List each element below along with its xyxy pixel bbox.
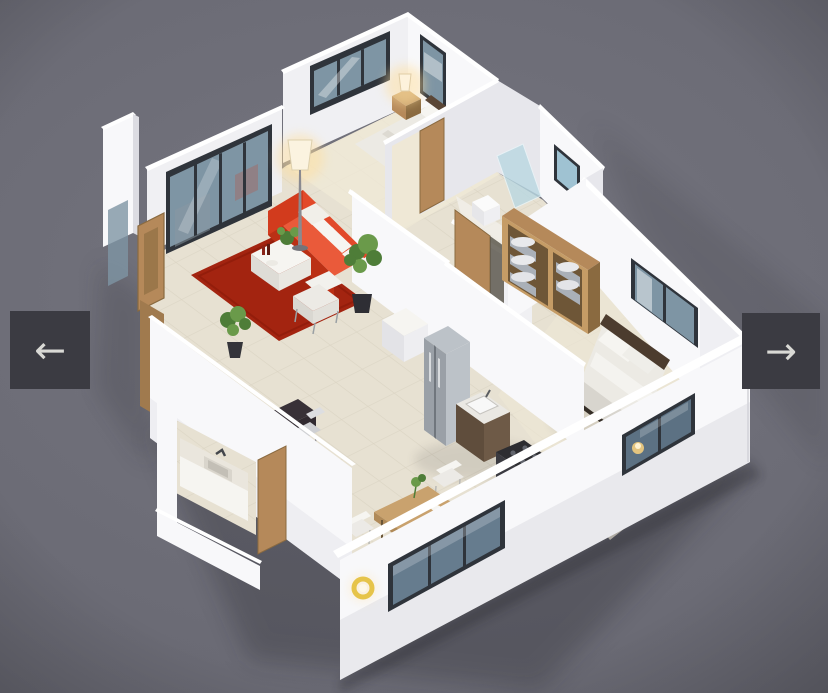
carousel-viewer: ← → — [0, 0, 828, 693]
floorplan-render — [0, 0, 828, 693]
arrow-left-icon: ← — [34, 331, 66, 369]
next-button[interactable]: → — [742, 313, 820, 389]
vignette — [0, 0, 828, 693]
arrow-right-icon: → — [765, 332, 797, 370]
prev-button[interactable]: ← — [10, 311, 90, 389]
